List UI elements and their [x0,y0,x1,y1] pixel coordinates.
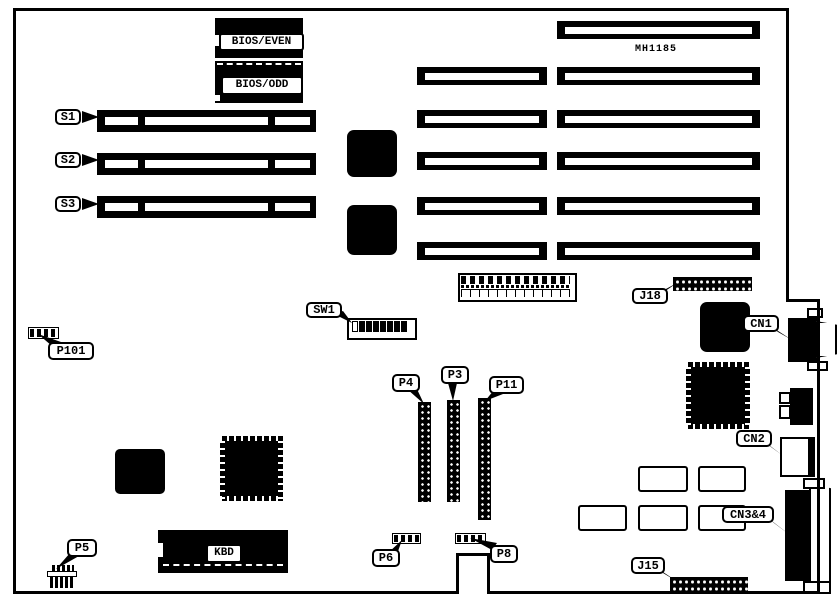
callout-s1: S1 [55,109,81,125]
expansion-slot [417,67,547,85]
sw1-dip-switch-cells [352,321,407,332]
p6-connector [392,533,421,544]
p8-connector [455,533,486,544]
cn1-screw-tab [807,308,823,318]
kbd-chip-notch [158,543,163,557]
p3-connector [447,400,460,502]
cn1-screw-tab [807,361,828,371]
board-part-number: MH1185 [635,44,677,55]
callout-p8: P8 [490,545,518,563]
callout-sw1: SW1 [306,302,342,318]
p3-leader-arrow [448,383,457,401]
qfp-chip [220,436,283,501]
din-port-body [790,388,813,425]
cn2-port-edge [808,439,815,475]
simm-socket-s1 [97,110,316,132]
callout-cn1: CN1 [743,315,779,332]
expansion-slot [417,197,547,215]
p11-connector [478,398,491,520]
socket-outline [638,505,688,531]
din-plug [779,392,791,404]
expansion-slot [557,110,760,128]
kbd-label: KBD [206,544,242,563]
expansion-slot [417,152,547,170]
callout-s2: S2 [55,152,81,168]
callout-j18: J18 [632,288,668,304]
simm-socket-s3 [97,196,316,218]
din-plug [779,405,791,419]
cn34-parallel-port-shell [809,483,831,588]
callout-p6: P6 [372,549,400,567]
cn34-screw-tab [803,581,831,594]
callout-cn2: CN2 [736,430,772,447]
bios-odd-label: BIOS/ODD [221,76,303,95]
expansion-slot [557,197,760,215]
p101-connector [28,327,59,339]
callout-cn34: CN3&4 [722,506,774,523]
ic-chip [347,130,397,177]
ic-chip [347,205,397,255]
j18-connector [673,277,752,291]
j15-connector [670,577,748,592]
expansion-slot [557,21,760,39]
bios-even-label: BIOS/EVEN [219,33,304,51]
cn34-parallel-port-body [785,490,810,581]
callout-p5: P5 [67,539,97,557]
expansion-slot [557,152,760,170]
callout-p3: P3 [441,366,469,384]
p5-connector-pins-bottom [50,577,75,588]
callout-j15: J15 [631,557,665,574]
expansion-slot [417,110,547,128]
socket-outline [578,505,627,531]
expansion-slot [557,67,760,85]
bios-odd-notch [215,95,220,101]
simm-socket-s2 [97,153,316,175]
expansion-slot [417,242,547,260]
power-connector [458,273,577,302]
qfp-chip [686,362,750,429]
callout-p4: P4 [392,374,420,392]
callout-s3: S3 [55,196,81,212]
socket-outline [698,466,746,492]
callout-p11: P11 [489,376,524,394]
callout-p101: P101 [48,342,94,360]
motherboard-diagram: BIOS/EVEN BIOS/ODD MH1185 [0,0,840,602]
kbd-socket-dashes [163,564,283,566]
cn34-screw-tab [803,478,825,489]
ic-chip [115,449,165,494]
expansion-slot [557,242,760,260]
cn1-serial-port-shell [816,321,837,358]
socket-outline [638,466,688,492]
p4-connector [418,402,431,502]
cn1-serial-port-body [788,318,817,362]
